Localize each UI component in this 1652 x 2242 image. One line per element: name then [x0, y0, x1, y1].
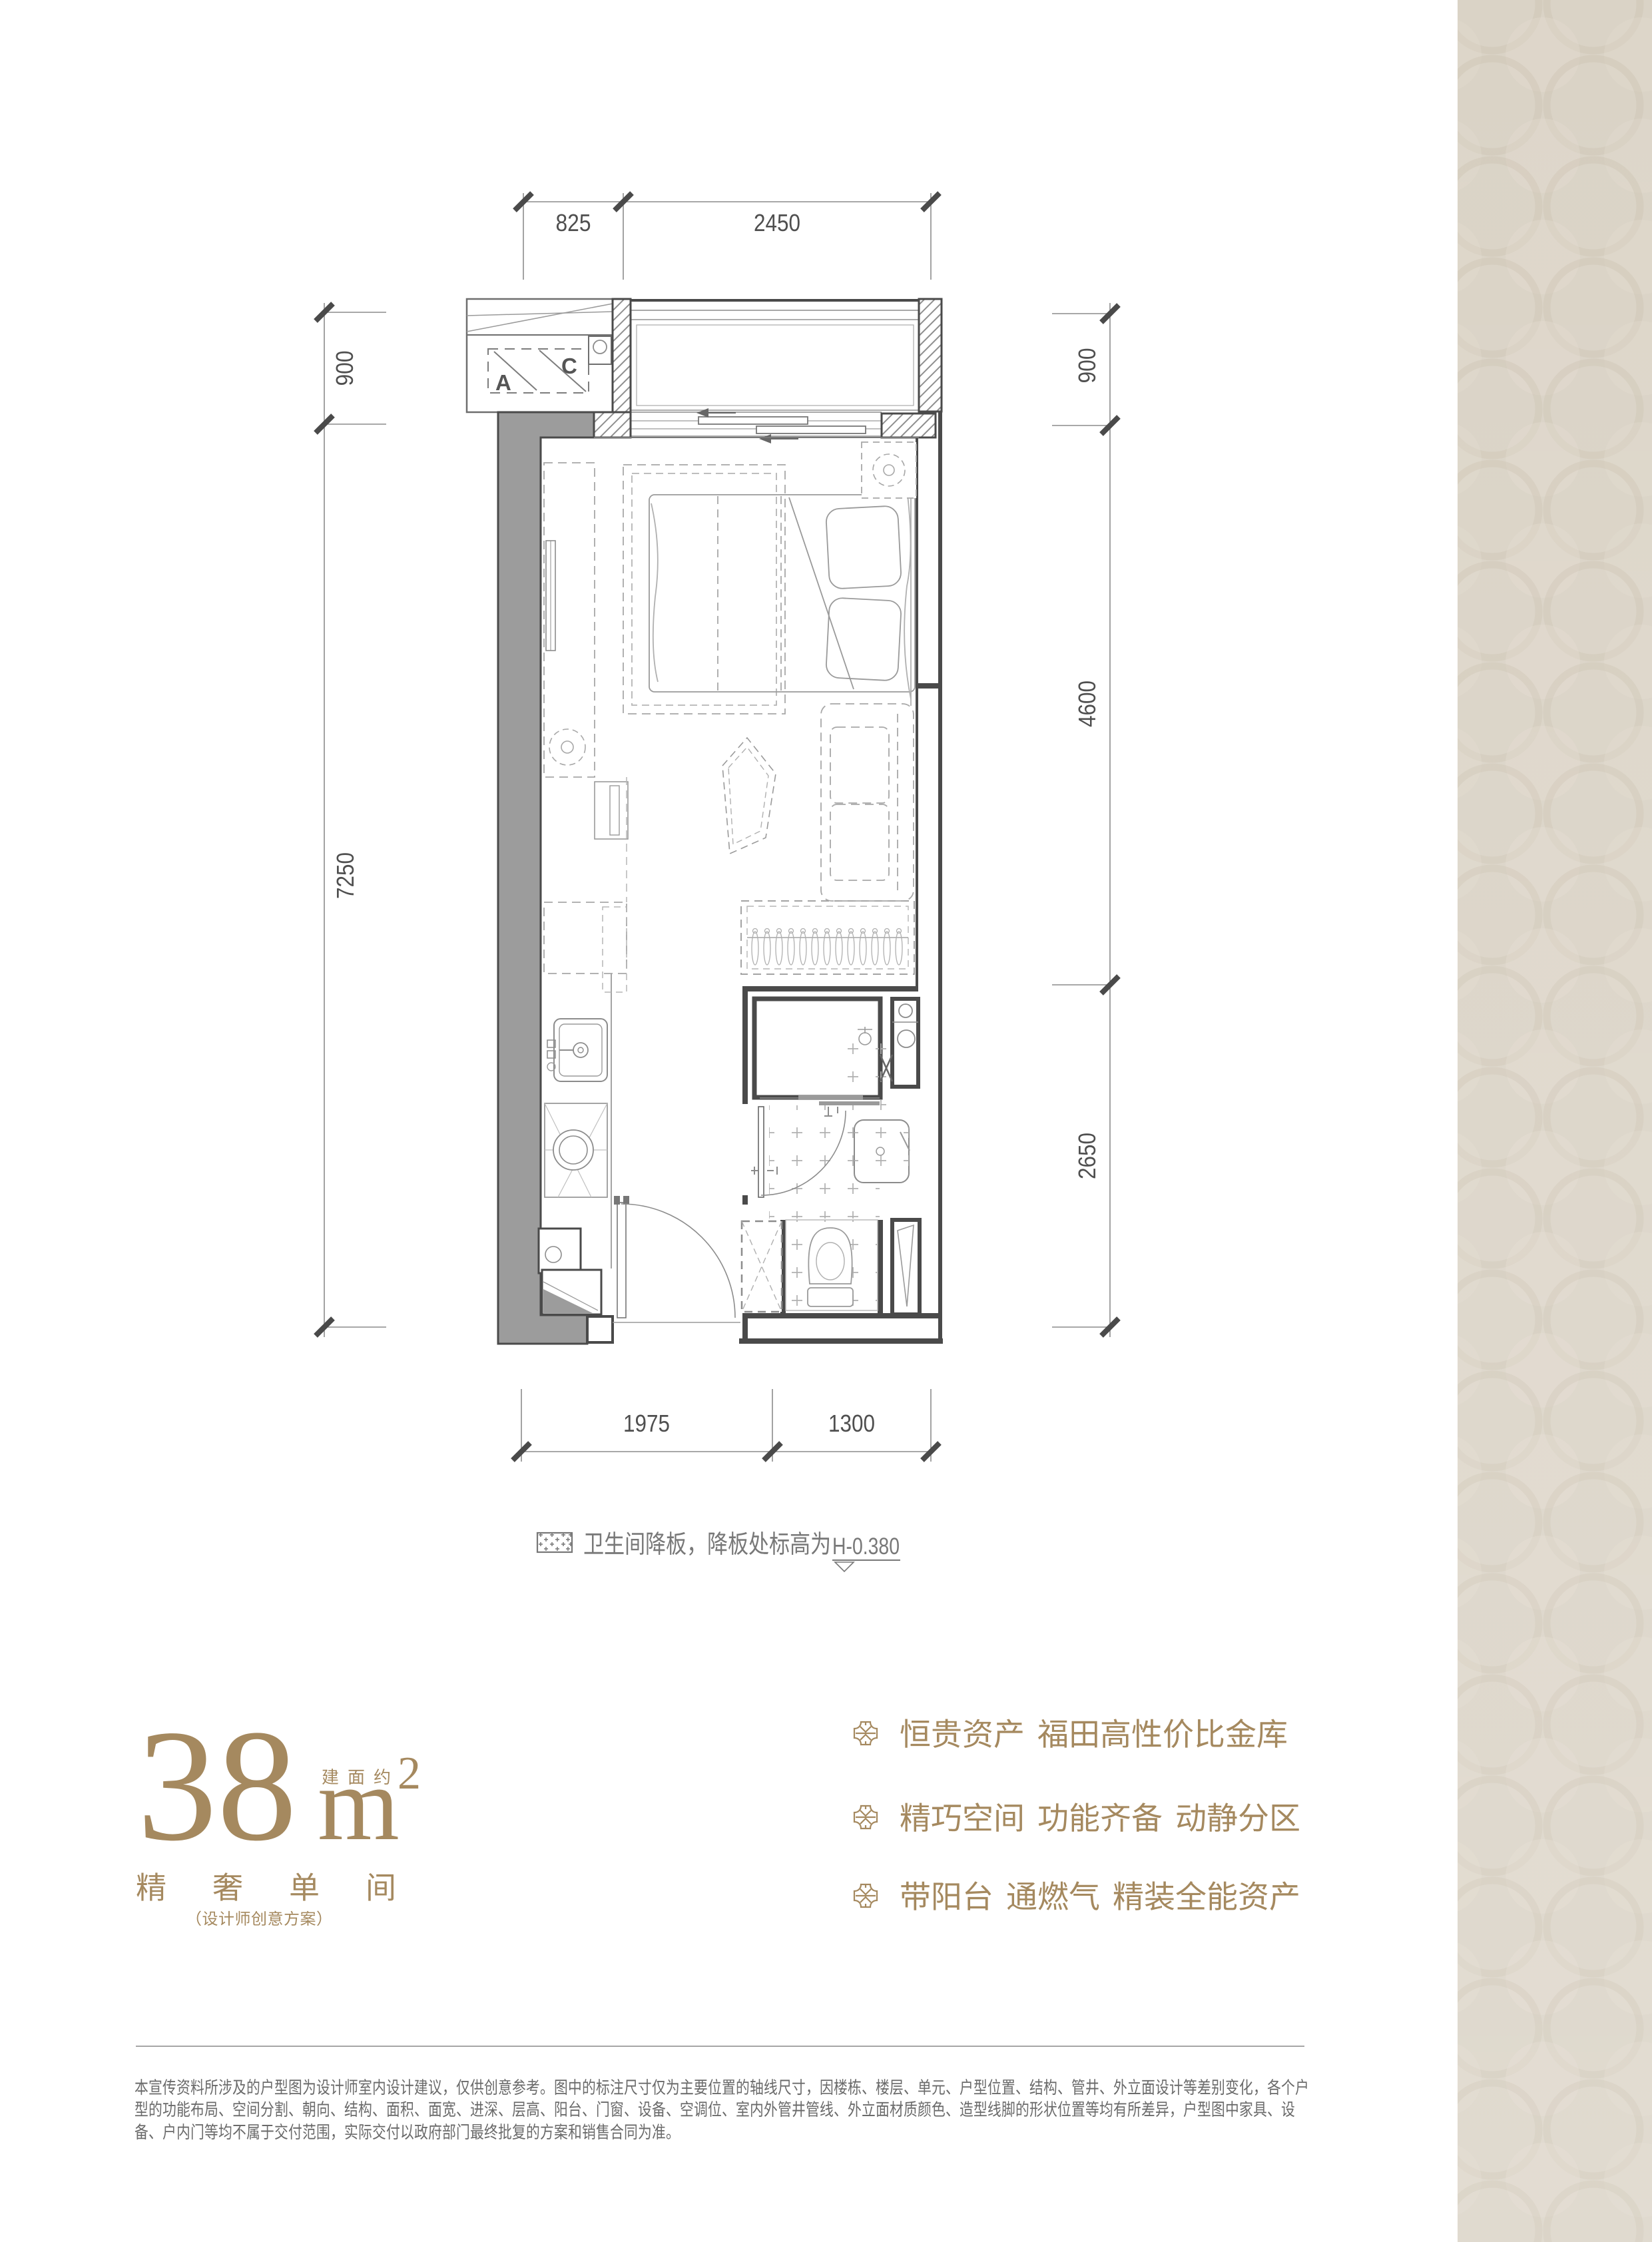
- svg-text:900: 900: [1073, 348, 1101, 384]
- svg-text:1300: 1300: [828, 1410, 875, 1437]
- svg-text:38: 38: [137, 1697, 297, 1874]
- svg-text:900: 900: [331, 351, 358, 386]
- svg-text:2450: 2450: [754, 209, 800, 236]
- svg-text:825: 825: [556, 209, 591, 236]
- svg-text:H-0.380: H-0.380: [832, 1534, 900, 1559]
- svg-text:2: 2: [398, 1748, 421, 1799]
- svg-text:m: m: [318, 1746, 400, 1862]
- svg-text:4600: 4600: [1073, 681, 1101, 727]
- svg-text:1975: 1975: [623, 1410, 670, 1437]
- svg-text:7250: 7250: [332, 852, 359, 899]
- svg-text:2650: 2650: [1073, 1133, 1101, 1179]
- svg-text:A: A: [495, 370, 511, 395]
- svg-text:C: C: [561, 354, 577, 378]
